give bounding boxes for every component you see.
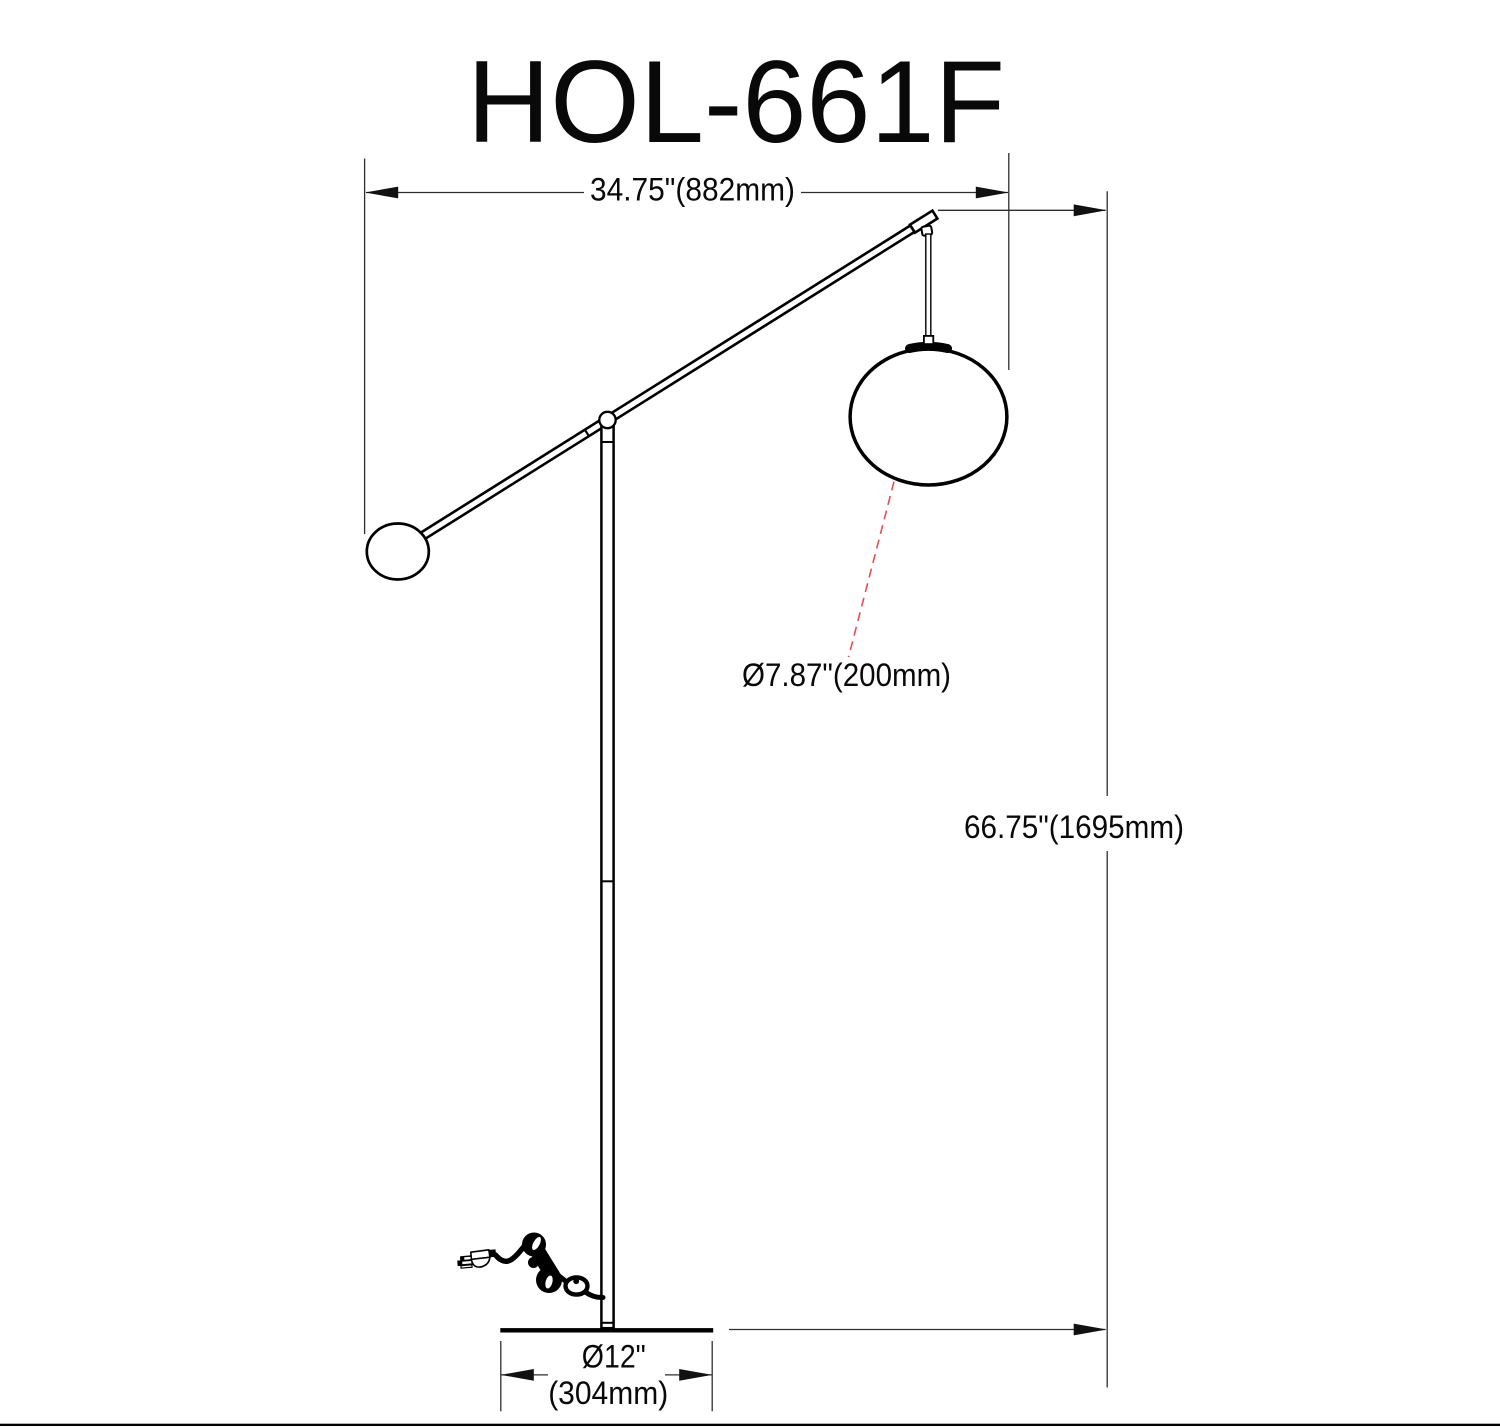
svg-text:34.75"(882mm): 34.75"(882mm) [590,172,795,208]
svg-text:HOL-661F: HOL-661F [467,37,1005,167]
svg-text:Ø7.87"(200mm): Ø7.87"(200mm) [742,657,951,693]
svg-text:66.75"(1695mm): 66.75"(1695mm) [964,809,1184,845]
svg-text:(304mm): (304mm) [548,1375,668,1411]
svg-text:Ø12": Ø12" [582,1339,646,1375]
